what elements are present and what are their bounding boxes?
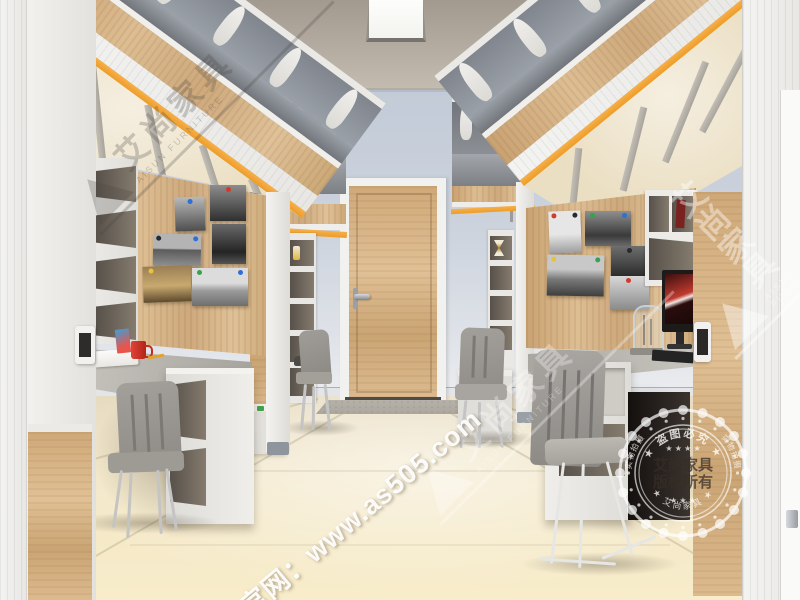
shelf-opening bbox=[490, 296, 512, 320]
door bbox=[349, 186, 437, 398]
far-right-chair-seat bbox=[455, 384, 507, 400]
shelf-opening bbox=[649, 196, 669, 232]
left-guardrail-spindle bbox=[322, 85, 362, 132]
dorm-room-photo: 艾尚家具 AISUN FURNITURE 艾尚家具 AISUN FURNITUR… bbox=[0, 0, 800, 600]
chair-back-slot bbox=[130, 395, 136, 451]
shelf-opening bbox=[490, 236, 512, 260]
right-guardrail-spindle bbox=[454, 59, 495, 105]
pinned-photo bbox=[212, 224, 246, 264]
door-inner-panel bbox=[356, 193, 432, 393]
cabinet-top-lip bbox=[166, 368, 254, 374]
right-guardrail-spindle bbox=[508, 14, 549, 60]
glassware bbox=[650, 319, 652, 345]
tile-grout-line bbox=[130, 544, 670, 546]
chair-back-slot bbox=[144, 394, 150, 452]
left-corner-post bbox=[266, 192, 290, 452]
door-hinge bbox=[786, 510, 798, 528]
greeting-card bbox=[115, 328, 131, 353]
copyright-stamp: ★ 盗图必究 ★ ★ 艾尚家具 ★ 实物拍摄 实物拍摄 ★ ★ ★ ★ 艾尚家具… bbox=[612, 402, 754, 544]
shelf-opening bbox=[96, 210, 136, 248]
left-post-foot bbox=[267, 442, 289, 455]
device-screen bbox=[79, 333, 91, 357]
shelf-opening bbox=[290, 304, 314, 330]
pinned-photo bbox=[547, 255, 605, 297]
left-guardrail-spindle bbox=[210, 2, 250, 49]
pinned-photo bbox=[153, 234, 202, 267]
underside-beam bbox=[662, 61, 709, 164]
monitor-base bbox=[667, 344, 692, 349]
underside-beam bbox=[620, 106, 648, 191]
shelf-opening bbox=[290, 272, 314, 298]
door-handle bbox=[354, 294, 370, 299]
chair-leg bbox=[478, 402, 481, 448]
wardrobe-rail bbox=[28, 424, 92, 432]
stamp-stars-bottom: ★ ★ ★ bbox=[670, 496, 696, 505]
wall-device-panel bbox=[75, 326, 95, 364]
pinned-photo bbox=[210, 185, 246, 221]
pinned-photo bbox=[585, 211, 631, 246]
far-right-chair-back bbox=[459, 327, 505, 390]
left-wardrobe bbox=[26, 0, 96, 600]
door-mat bbox=[316, 400, 480, 414]
stamp-center-line2: 版权所有 bbox=[653, 473, 713, 491]
chair-back-slot bbox=[471, 336, 475, 378]
tile-grout-line bbox=[240, 470, 570, 472]
floor-shadow bbox=[440, 430, 540, 448]
pinned-photo bbox=[192, 268, 248, 306]
pinned-photo bbox=[548, 210, 581, 253]
chair-back-slot bbox=[483, 336, 487, 378]
pinned-photo bbox=[142, 265, 191, 303]
chair-back-slot bbox=[158, 393, 164, 449]
floor-shadow bbox=[280, 420, 360, 436]
shelf-opening bbox=[490, 266, 512, 290]
shelf-opening bbox=[96, 256, 136, 294]
ceiling-light bbox=[366, 0, 426, 42]
left-guardrail-spindle bbox=[266, 44, 306, 91]
glass-cloche bbox=[633, 305, 664, 353]
pinned-photo bbox=[611, 246, 649, 276]
bottle-ornament bbox=[293, 246, 300, 260]
left-edge-pillar bbox=[0, 0, 27, 600]
red-mug bbox=[131, 341, 146, 359]
stamp-center-line1: 艾尚家具 bbox=[653, 456, 713, 474]
shelf-opening bbox=[96, 166, 136, 202]
wardrobe-wood-door bbox=[28, 432, 92, 600]
monitor-screen bbox=[665, 274, 695, 324]
far-left-chair-seat bbox=[296, 372, 332, 384]
device-screen bbox=[697, 329, 708, 355]
pinned-photo bbox=[174, 196, 205, 231]
stamp-stars-top: ★ ★ ★ ★ bbox=[665, 444, 700, 453]
red-book bbox=[675, 200, 685, 228]
wall-device-panel bbox=[694, 322, 711, 362]
glassware bbox=[643, 315, 645, 345]
